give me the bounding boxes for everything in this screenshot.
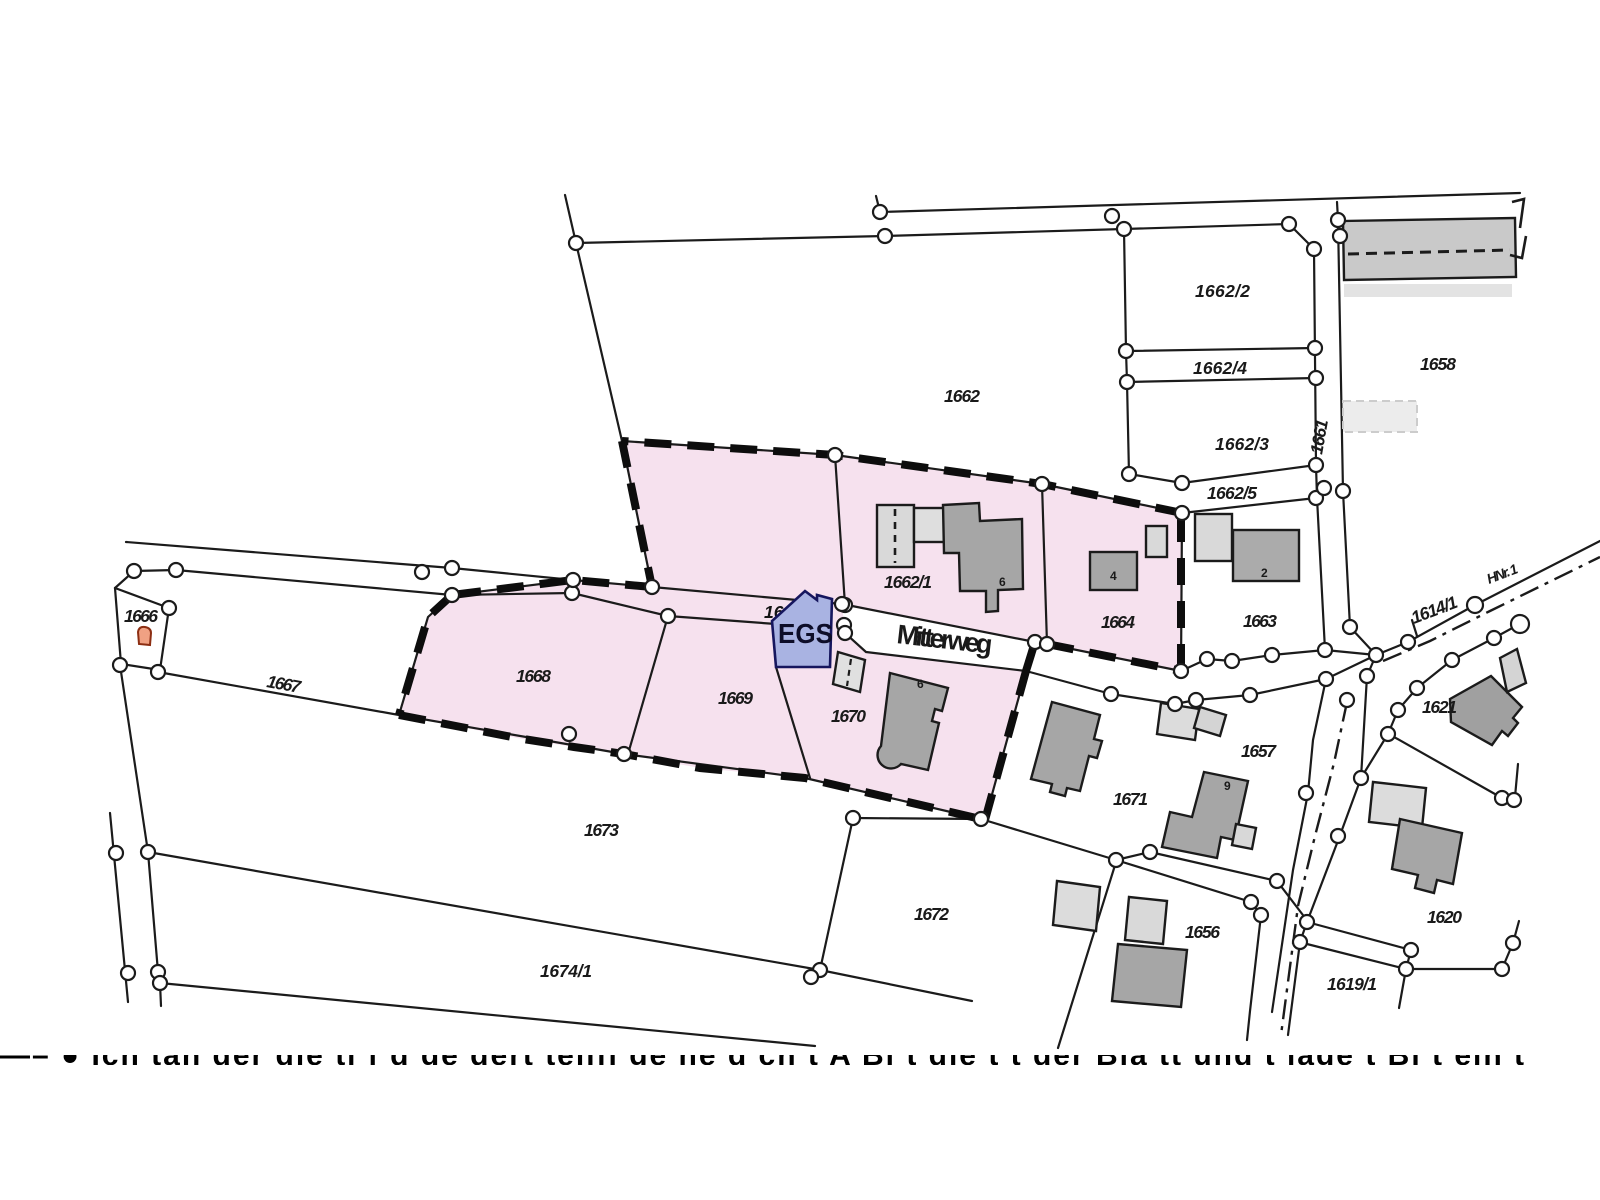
svg-text:1668: 1668 [516,666,551,686]
svg-text:9: 9 [1224,779,1231,793]
svg-text:1621: 1621 [1422,697,1457,717]
svg-text:1672: 1672 [914,904,949,924]
svg-text:1669: 1669 [718,688,753,708]
svg-text:1674/1: 1674/1 [540,961,592,981]
svg-text:1664: 1664 [1101,612,1135,632]
svg-text:1666: 1666 [124,606,158,626]
svg-text:6: 6 [999,575,1006,589]
svg-text:1663: 1663 [1243,611,1277,631]
svg-text:EGS: EGS [778,618,833,649]
svg-text:1662/3: 1662/3 [1215,434,1269,454]
svg-text:1673: 1673 [584,820,619,840]
svg-text:2: 2 [1261,566,1268,580]
svg-text:1662/5: 1662/5 [1207,483,1257,503]
svg-text:6: 6 [917,677,924,691]
svg-text:1662/4: 1662/4 [1193,358,1247,378]
svg-text:1671: 1671 [1113,789,1148,809]
svg-text:1619/1: 1619/1 [1327,974,1377,994]
svg-text:1670: 1670 [831,706,866,726]
svg-text:1620: 1620 [1427,907,1462,927]
svg-text:1658: 1658 [1420,354,1456,374]
svg-text:1662/1: 1662/1 [884,572,932,592]
svg-text:1656: 1656 [1185,922,1220,942]
svg-text:1657: 1657 [1241,741,1277,761]
svg-text:1662/2: 1662/2 [1195,281,1250,301]
svg-text:4: 4 [1110,569,1117,583]
svg-text:1662: 1662 [944,386,980,406]
